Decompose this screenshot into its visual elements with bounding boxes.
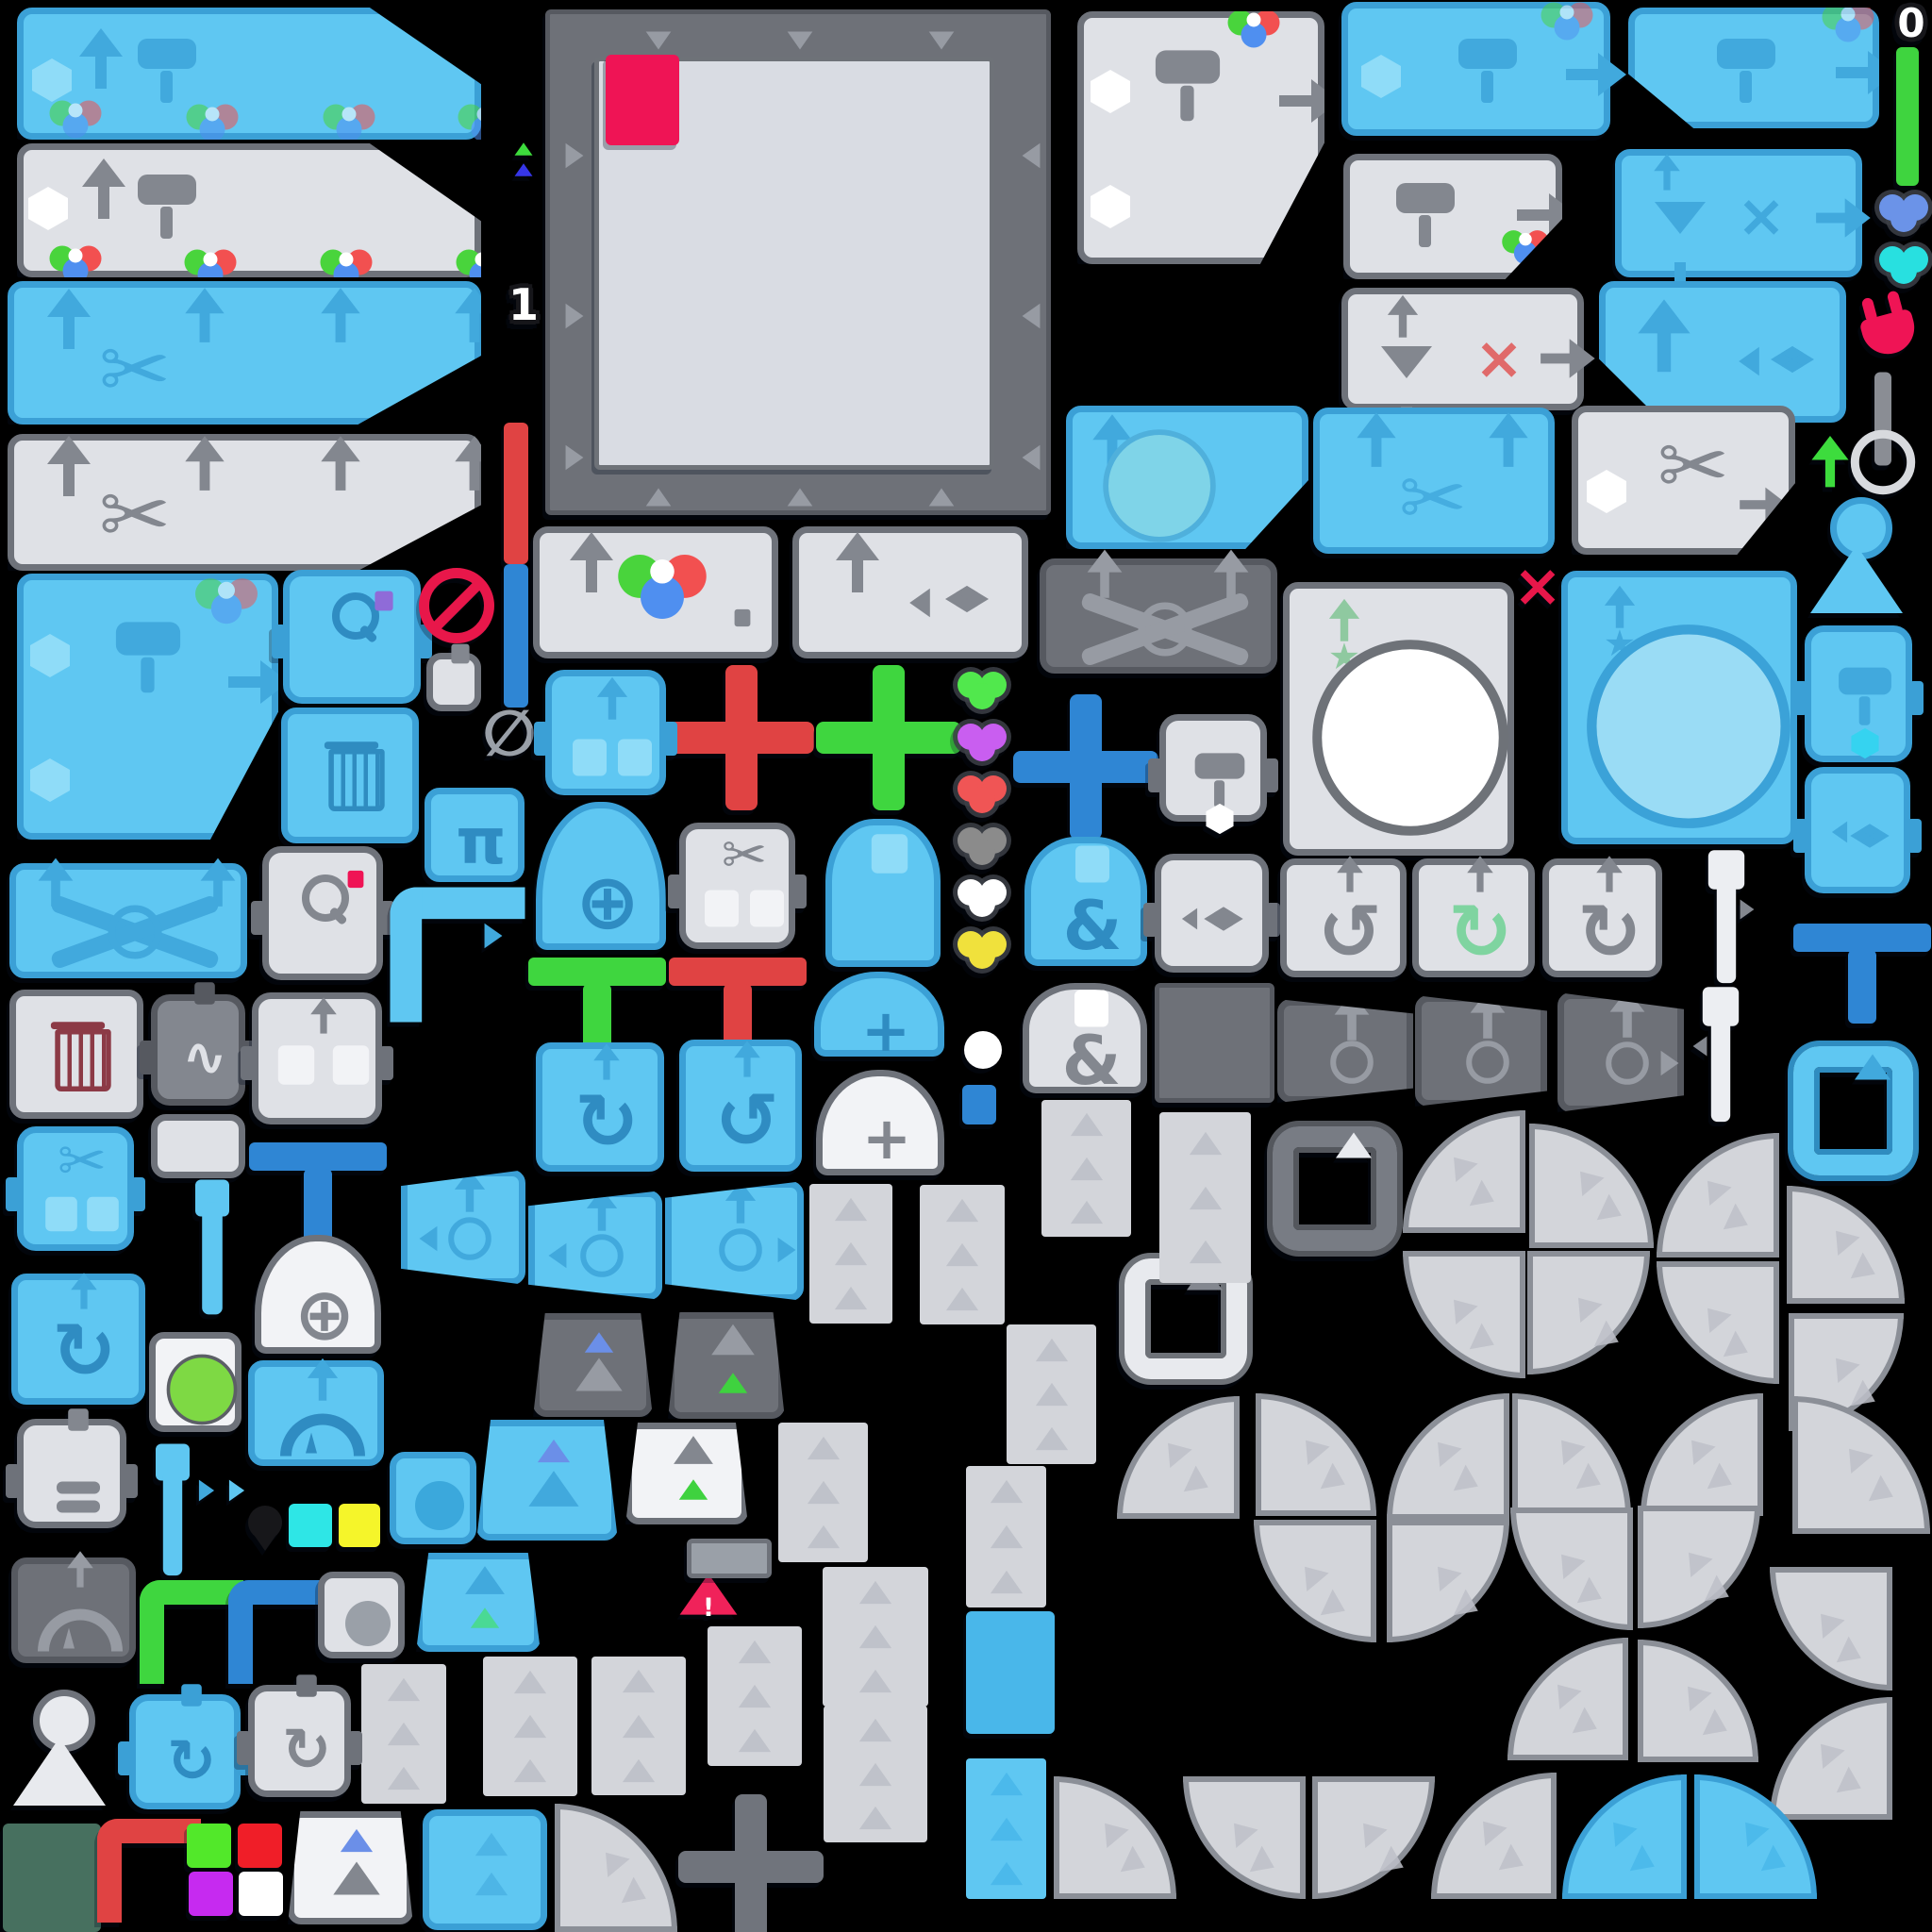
tri-icon: [1832, 822, 1847, 843]
arrow-icon: [836, 532, 879, 594]
belt-straight: [1041, 1100, 1131, 1237]
g-icon: ↻: [282, 1721, 331, 1779]
balancer-x-blue: [9, 863, 247, 978]
arrow-icon: [67, 1551, 93, 1589]
roller-icon: [1156, 50, 1220, 83]
blank-button-gray: [151, 1114, 245, 1178]
g-icon: ↺: [1318, 894, 1382, 972]
button-gray: [318, 1572, 405, 1658]
tri-icon: [1035, 1427, 1067, 1450]
no-sign: [429, 575, 484, 647]
tri-icon: [1570, 1162, 1605, 1196]
reader-pulse-dark: ∿: [151, 994, 245, 1106]
rotator-blue-big: ↻: [11, 1274, 145, 1405]
tri-icon: [1576, 1576, 1607, 1611]
belt-curve: [1657, 1133, 1779, 1257]
tri-icon: [711, 1324, 755, 1355]
rgb-icon: [1836, 17, 1861, 42]
wire-elbow-blue: [233, 1583, 320, 1668]
tri-icon: [1352, 1814, 1387, 1848]
blob-icon: [969, 787, 995, 813]
arrow-icon: [185, 436, 224, 491]
sq-icon: [705, 891, 739, 927]
belt-panel-blue-solid: [966, 1611, 1055, 1734]
tri-icon: [859, 1807, 891, 1829]
person-icon: [1830, 497, 1892, 559]
tri-icon: [1550, 1431, 1585, 1465]
blob-green: [958, 670, 1007, 715]
analyzer-blue: [283, 570, 421, 704]
ring-icon: [1851, 430, 1915, 494]
belt-curve: [1510, 1507, 1633, 1630]
elbow-pipe-blue: [399, 887, 522, 1019]
tee-icon: [1793, 924, 1931, 952]
rgb-icon: [63, 113, 89, 139]
bar-green: [1896, 47, 1919, 186]
tri-icon: [475, 1833, 508, 1856]
sq-icon: [618, 740, 652, 776]
tri-icon: [341, 1829, 373, 1852]
bar-blue: [504, 564, 528, 708]
trash-blue: [281, 708, 419, 843]
elbow-icon: [97, 1819, 201, 1923]
lever-green: [149, 1332, 241, 1432]
sq-icon: [375, 591, 392, 611]
tri-icon: [990, 1525, 1022, 1548]
belt-curve: [1403, 1110, 1525, 1233]
lever-white-1: [1698, 855, 1755, 982]
circle-icon: [1103, 429, 1216, 542]
arrow-icon: [570, 532, 613, 594]
belt-curve: [1657, 1261, 1779, 1384]
vchip-cutter-gray: ✂: [679, 823, 795, 949]
belt-curve: [1403, 1251, 1525, 1378]
arrow-icon: [1335, 992, 1370, 1042]
tri-icon: [1023, 304, 1041, 329]
wire-tee-blue-mid: [248, 1136, 388, 1219]
rotator-cw-blue: ↻: [536, 1042, 664, 1172]
tri-icon: [859, 1670, 891, 1692]
tri-icon: [946, 1198, 978, 1221]
tri-icon: [646, 32, 672, 50]
tri-icon: [1630, 1845, 1660, 1880]
ring-icon: [1466, 1041, 1509, 1084]
blob-icon: [969, 891, 995, 917]
quad-cutter-blue: ✂: [8, 281, 481, 425]
arrow-icon: [47, 436, 91, 498]
tri-icon: [1573, 1707, 1603, 1741]
arrow-icon: [1654, 154, 1680, 192]
blob-cyan: [1877, 241, 1930, 291]
item-yellow: [339, 1504, 380, 1547]
bar-icon: [1717, 877, 1736, 983]
wire-tee-green: [528, 951, 666, 1034]
sq-icon: [68, 1408, 89, 1430]
g-icon: ✂: [722, 828, 767, 883]
miner-blue-a: [476, 1420, 618, 1541]
belt-curve: [1312, 1776, 1435, 1899]
arrow-icon: [71, 1273, 97, 1310]
g-icon: ✂: [58, 1132, 107, 1191]
painter-double-gray: [1077, 11, 1324, 264]
tri-icon: [1426, 1433, 1461, 1467]
tri-icon: [1293, 1557, 1328, 1591]
count-one: 1: [508, 281, 540, 328]
tri-icon: [1677, 1543, 1712, 1577]
vchip-stacker-blue: [1805, 767, 1910, 893]
arrow-icon: [1564, 53, 1626, 96]
hbar-icon: [57, 1482, 100, 1494]
no-icon: [419, 568, 494, 643]
g-icon: π: [456, 809, 506, 873]
pi-tile-blue: π: [425, 788, 525, 882]
tri-icon: [990, 1773, 1022, 1795]
tri-icon: [229, 1480, 244, 1502]
tri-icon: [388, 1677, 420, 1700]
g-icon: ✂: [99, 473, 171, 558]
transistor-gray: [17, 1419, 126, 1528]
tri-icon: [528, 1471, 578, 1507]
tri-icon: [739, 1685, 771, 1707]
helmet-tunnel-blue: ⊕: [536, 802, 666, 950]
splitter-dark-c: [1557, 992, 1684, 1112]
ring-icon: [108, 906, 162, 959]
tri-icon: [788, 32, 813, 50]
belt-straight: [591, 1657, 686, 1795]
tri-icon: [679, 1479, 708, 1500]
tri-icon: [1070, 1113, 1102, 1136]
storage-dark: [1155, 983, 1274, 1103]
tri-icon: [1469, 1179, 1499, 1214]
tri-icon: [1035, 1383, 1067, 1406]
tri-icon: [199, 1480, 214, 1502]
tri-icon: [1809, 1605, 1844, 1639]
tri-icon: [465, 1566, 505, 1594]
miner-blue-c: [423, 1809, 547, 1930]
stacker-blue: [1599, 281, 1846, 423]
splitter-dark-b: [1415, 995, 1547, 1107]
g-icon: ✂: [99, 327, 171, 413]
elbow-icon: [391, 888, 525, 1023]
person-pin-blue: [1810, 491, 1912, 625]
item-cyan: [289, 1504, 332, 1547]
arrow-icon: [455, 288, 493, 343]
arrow-icon: [455, 1170, 485, 1213]
blob-icon: [969, 735, 995, 761]
tri-icon: [1839, 1440, 1874, 1474]
blob-white: [958, 877, 1007, 923]
tri-icon: [1603, 1813, 1638, 1847]
sq-icon: [45, 1197, 77, 1231]
ring-icon: [1330, 1041, 1374, 1084]
hex-icon: [1091, 70, 1130, 113]
tri-icon: [1693, 1037, 1707, 1057]
sprite-atlas: ✂✂××✂✂01∅π∿✂↻⊕↻↺++⊕✂★×★&&↺↻↻↻↻!: [0, 0, 1932, 1932]
bar-icon: [1711, 1016, 1730, 1122]
tri-icon: [1546, 1675, 1581, 1709]
hex-icon: [1851, 728, 1878, 758]
map-pin-black: [247, 1506, 283, 1551]
item-purple: [189, 1872, 233, 1916]
hub-level-chip: [606, 55, 679, 145]
g-icon: ×: [1474, 329, 1524, 388]
belt-curve: [1507, 1638, 1628, 1760]
tri-icon: [1696, 1172, 1731, 1206]
tri-icon: [1093, 1814, 1128, 1848]
g-icon: +: [861, 1002, 910, 1060]
miner-blue-chest: [248, 1360, 384, 1466]
tunnel-dome-gray: ⊕: [255, 1235, 381, 1354]
tri-icon: [859, 1719, 891, 1741]
cross-icon: [816, 722, 961, 754]
g-icon: ⊕: [575, 864, 640, 941]
bar-red: [504, 423, 528, 564]
painter-gray-a: [1343, 154, 1562, 279]
belt-straight-double: [1159, 1112, 1251, 1283]
g-icon: &: [1063, 892, 1123, 960]
g-icon: ↻: [1577, 894, 1641, 972]
analyzer-gray: [262, 846, 383, 980]
roller-icon: [116, 622, 180, 655]
tri-icon: [333, 1861, 379, 1894]
wire-elbow-green: [144, 1583, 231, 1668]
blob-cornflower: [1877, 189, 1930, 240]
sq-icon: [87, 1197, 119, 1231]
arrow-icon: [1357, 412, 1395, 468]
circle-icon: [1587, 625, 1790, 828]
tri-icon: [1593, 1321, 1624, 1356]
belt-straight: [708, 1626, 802, 1766]
tri-icon: [1453, 1589, 1483, 1624]
tri-icon: [788, 489, 813, 507]
wire-cross-red: [668, 665, 814, 810]
rgb-icon: [1555, 15, 1580, 41]
tri-icon: [929, 489, 955, 507]
tri-icon: [646, 489, 672, 507]
tri-icon: [538, 1440, 570, 1462]
sq-icon: [451, 644, 469, 664]
tri-icon: [388, 1767, 420, 1790]
tri-icon: [835, 1242, 867, 1265]
dot-icon: [345, 1601, 391, 1646]
tri-icon: [835, 1287, 867, 1309]
vchip-balancer-blue: [545, 670, 666, 795]
belt-curve: [1529, 1124, 1654, 1248]
goal-acceptor-gray: ★: [1283, 582, 1514, 856]
splitter-blue-a: [401, 1170, 525, 1285]
mini-arrow-green: [514, 142, 533, 164]
small-rect-gray: [687, 1539, 772, 1578]
g-icon: ↻: [52, 1313, 116, 1391]
vchip-painter-blue: [1805, 625, 1912, 762]
canister-gray: [426, 653, 481, 711]
arrow-icon: [79, 28, 123, 91]
roller-icon: [1396, 183, 1455, 213]
belt-curve: [1512, 1393, 1631, 1516]
sq-icon: [1075, 846, 1109, 883]
tri-icon: [514, 1715, 546, 1738]
blob-yellow: [958, 929, 1007, 974]
miner-dark-b: [668, 1312, 785, 1419]
hex-icon: [1206, 804, 1233, 834]
arrow-icon: [308, 1358, 338, 1402]
blob-purple: [958, 722, 1007, 767]
arrow-icon: [185, 288, 224, 343]
tri-icon: [1680, 1431, 1715, 1465]
belt-curve: [1254, 1520, 1376, 1642]
belt-curve: [1256, 1393, 1376, 1516]
double-painter-blue-big: [17, 574, 278, 840]
tri-icon: [1696, 1299, 1731, 1333]
funnel-icon: [1381, 346, 1432, 378]
belt-curve: [1641, 1393, 1763, 1516]
hex-icon: [28, 187, 68, 230]
ring-icon: [580, 1234, 624, 1277]
sq-icon: [573, 740, 607, 776]
tri-icon: [475, 1873, 508, 1895]
tri-icon: [990, 1817, 1022, 1840]
tri-icon: [859, 1625, 891, 1648]
tri-icon: [1734, 1813, 1769, 1847]
tri-icon: [1336, 1133, 1372, 1158]
tri-icon: [515, 142, 533, 156]
cross-icon: [669, 722, 814, 754]
arrow-icon: [1515, 193, 1577, 237]
tri-icon: [1442, 1291, 1477, 1324]
sq-icon: [872, 834, 908, 874]
tri-icon: [621, 1876, 651, 1911]
tunnel-dome-blue: +: [814, 972, 944, 1057]
tri-icon: [1499, 1844, 1529, 1879]
sq-icon: [181, 1684, 202, 1706]
blob-icon: [969, 942, 995, 969]
belt-curve: [1117, 1396, 1240, 1519]
white-dot-item: [964, 1027, 1002, 1073]
wire-elbow-red: [104, 1824, 188, 1905]
miner-white-a: [625, 1423, 748, 1524]
tri-icon: [719, 1373, 747, 1393]
belt-straight: [809, 1184, 892, 1324]
sq-icon: [296, 1674, 317, 1696]
layers-icon: [945, 586, 989, 612]
g-icon: ∿: [182, 1030, 227, 1085]
layers-icon: [1771, 346, 1814, 373]
wire-tee-red: [668, 951, 808, 1034]
splitter-blue-b: [528, 1191, 662, 1300]
gate2-blue: [825, 819, 941, 967]
arrow-icon: [1214, 550, 1249, 600]
g-icon: ×: [1513, 557, 1562, 615]
hex-icon: [1361, 55, 1401, 98]
belt-straight: [361, 1664, 446, 1804]
tri-icon: [1597, 1194, 1627, 1229]
dot-icon: [415, 1481, 464, 1530]
empty-set: ∅: [487, 709, 532, 758]
rgb-icon: [472, 117, 497, 142]
g-icon: ↺: [715, 1083, 779, 1160]
item-white: [239, 1872, 283, 1916]
quad-painter-gray: [17, 143, 481, 277]
belt-curve: [1787, 1186, 1905, 1304]
tri-icon: [990, 1862, 1022, 1885]
rgb-icon: [1514, 241, 1537, 264]
quad-painter-blue: [17, 8, 481, 140]
tri-icon: [946, 1243, 978, 1266]
wire-cross-green: [816, 665, 961, 810]
tri-icon: [623, 1670, 655, 1692]
belt-straight: [483, 1657, 577, 1796]
tri-icon: [990, 1480, 1022, 1503]
hex-icon: [1587, 470, 1626, 513]
ring-icon: [1139, 603, 1192, 657]
splitter-blue-c: [665, 1181, 804, 1301]
tri-icon: [1223, 1814, 1257, 1848]
tri-icon: [946, 1288, 978, 1310]
belt-straight: [1007, 1324, 1096, 1464]
roller-icon: [138, 175, 196, 205]
belt-curve-blue: [1562, 1774, 1687, 1899]
arc-rotate-ccw: ↺: [1280, 858, 1407, 977]
blob-icon: [969, 839, 995, 865]
sq-icon: [278, 1045, 314, 1085]
rgb-icon: [211, 593, 241, 624]
blob-icon: [1890, 206, 1917, 232]
blob-icon: [1890, 258, 1917, 284]
belt-curve: [555, 1804, 677, 1932]
gauge-icon: [38, 1609, 123, 1652]
count-zero: 0: [1890, 2, 1932, 45]
arrow-icon: [455, 436, 493, 491]
tri-icon: [807, 1525, 839, 1548]
belt-straight-blue: [966, 1758, 1046, 1899]
tri-icon: [1676, 1677, 1711, 1711]
tunnel-dome-gray2: +: [816, 1070, 944, 1175]
vchip-stacker-gray: [1155, 854, 1269, 973]
tri-icon: [566, 304, 584, 329]
arrow-icon: [734, 1041, 760, 1078]
rotator-ccw-blue: ↺: [679, 1040, 802, 1172]
tri-icon: [1868, 1475, 1898, 1510]
tri-icon: [1023, 143, 1041, 169]
arrow-icon: [310, 997, 337, 1035]
arrow-icon: [321, 288, 359, 343]
tri-icon: [739, 1729, 771, 1752]
belt-straight: [824, 1706, 927, 1842]
arrow-icon: [1834, 51, 1896, 94]
arrow-icon: [82, 158, 125, 221]
belt-straight: [920, 1185, 1005, 1324]
tee-icon: [249, 1142, 387, 1171]
blob-icon: [969, 683, 995, 709]
tri-icon: [1182, 908, 1197, 930]
mag-icon: [302, 874, 349, 922]
tri-icon: [1550, 1545, 1585, 1579]
tri-icon: [1576, 1462, 1607, 1497]
arrow-icon: [1811, 436, 1848, 489]
blue-square-item: [962, 1085, 996, 1124]
tri-icon: [1023, 445, 1041, 471]
belt-straight: [823, 1567, 928, 1707]
rgb-icon: [641, 575, 684, 619]
hex-icon: [30, 634, 70, 677]
arrow-icon: [1471, 991, 1506, 1041]
layers-icon: [1850, 824, 1889, 847]
arrow-icon: [1814, 198, 1870, 237]
tri-icon: [1442, 1148, 1477, 1182]
rotator-chip-gray: ↻: [248, 1685, 351, 1797]
belt-curve: [1638, 1640, 1758, 1762]
g-icon: ✂: [1657, 424, 1729, 509]
